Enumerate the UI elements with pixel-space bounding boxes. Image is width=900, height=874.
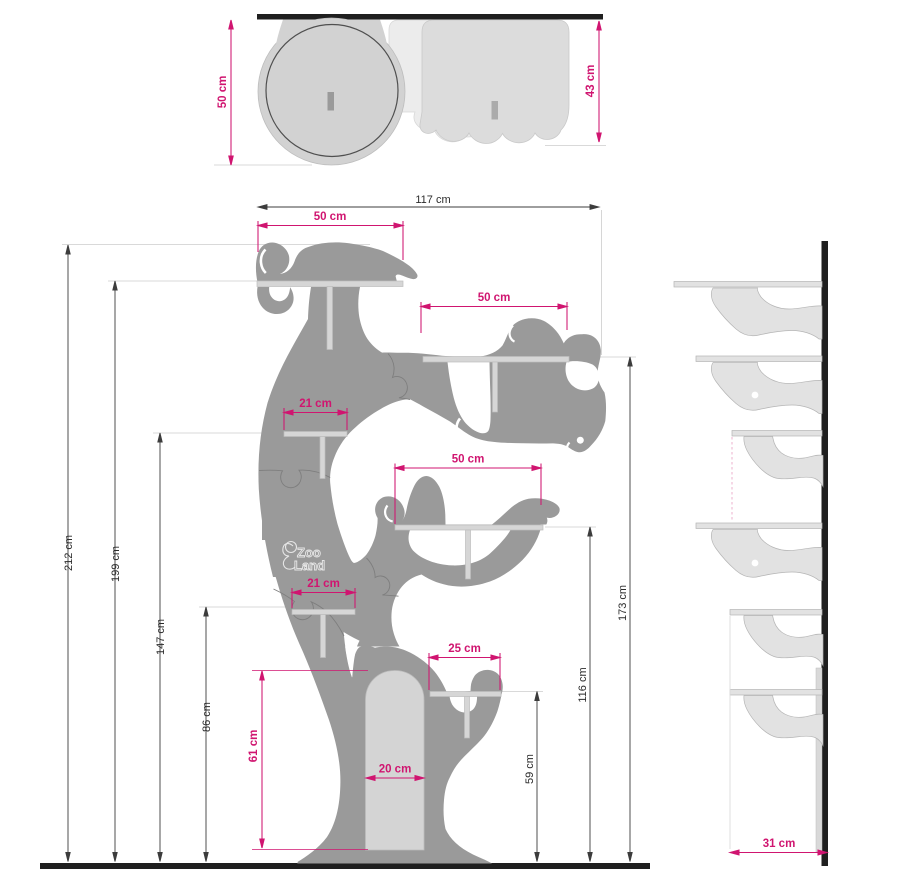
svg-text:20 cm: 20 cm [379, 764, 412, 776]
svg-text:43 cm: 43 cm [585, 65, 597, 98]
svg-text:116 cm: 116 cm [577, 667, 589, 702]
svg-text:117 cm: 117 cm [415, 194, 450, 206]
svg-text:21 cm: 21 cm [307, 578, 340, 590]
svg-text:86 cm: 86 cm [201, 702, 213, 732]
svg-text:59 cm: 59 cm [524, 754, 536, 784]
svg-text:61 cm: 61 cm [248, 730, 260, 763]
svg-text:173 cm: 173 cm [617, 585, 629, 621]
svg-text:50 cm: 50 cm [478, 292, 511, 304]
svg-text:25 cm: 25 cm [448, 643, 481, 655]
svg-text:21 cm: 21 cm [299, 398, 332, 410]
svg-text:50 cm: 50 cm [452, 454, 485, 466]
svg-text:147 cm: 147 cm [155, 619, 167, 655]
svg-text:50 cm: 50 cm [217, 76, 229, 109]
svg-text:50 cm: 50 cm [314, 211, 347, 223]
svg-text:Land: Land [294, 558, 325, 573]
svg-text:212 cm: 212 cm [63, 535, 75, 571]
svg-text:31 cm: 31 cm [763, 838, 796, 850]
svg-text:199 cm: 199 cm [110, 546, 122, 582]
